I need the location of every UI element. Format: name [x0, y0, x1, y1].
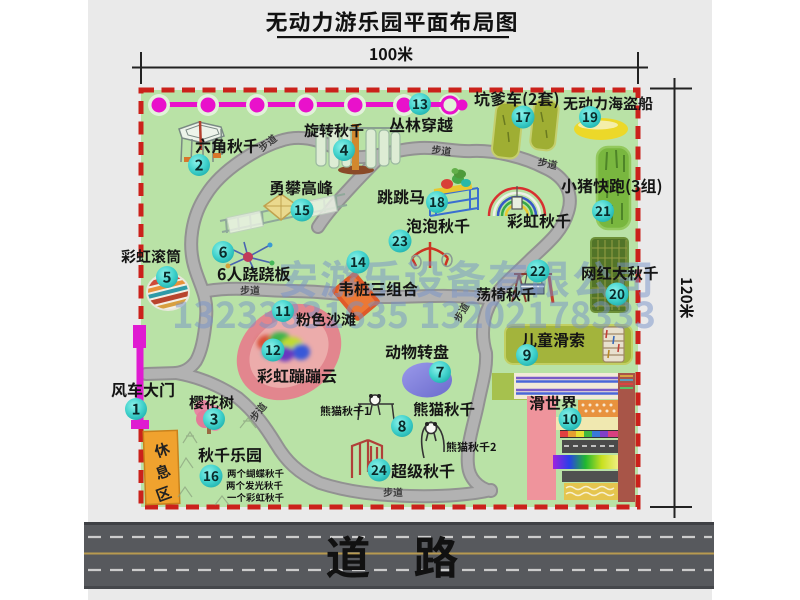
svg-text:14: 14: [350, 251, 366, 271]
svg-text:22: 22: [530, 260, 546, 280]
svg-text:超级秋千: 超级秋千: [391, 458, 455, 482]
svg-text:旋转秋千: 旋转秋千: [304, 120, 364, 141]
svg-text:13: 13: [412, 93, 428, 113]
svg-text:15: 15: [294, 199, 310, 219]
svg-text:步道: 步道: [383, 484, 403, 499]
svg-text:熊猫秋千1: 熊猫秋千1: [320, 403, 371, 419]
svg-text:彩虹秋千: 彩虹秋千: [507, 208, 571, 232]
svg-text:韦桩三组合: 韦桩三组合: [338, 276, 418, 300]
svg-text:小猪快跑(3组): 小猪快跑(3组): [561, 173, 663, 197]
svg-text:19: 19: [582, 106, 598, 126]
svg-text:12: 12: [265, 339, 281, 359]
svg-text:8: 8: [398, 416, 407, 437]
svg-text:1: 1: [132, 399, 141, 420]
svg-text:风车大门: 风车大门: [111, 377, 175, 401]
svg-text:6人跷跷板: 6人跷跷板: [217, 261, 290, 285]
svg-text:6: 6: [219, 242, 228, 263]
svg-text:六角秋千: 六角秋千: [195, 133, 259, 157]
svg-text:丛林穿越: 丛林穿越: [389, 112, 453, 136]
svg-text:3: 3: [210, 409, 219, 430]
svg-text:24: 24: [371, 459, 387, 479]
svg-text:泡泡秋千: 泡泡秋千: [406, 213, 470, 237]
svg-text:23: 23: [392, 230, 408, 250]
svg-text:16: 16: [203, 465, 219, 485]
svg-text:4: 4: [340, 140, 349, 161]
svg-text:9: 9: [523, 345, 532, 366]
svg-text:2: 2: [195, 155, 204, 176]
svg-text:道: 道: [325, 522, 370, 587]
svg-text:路: 路: [413, 522, 458, 587]
svg-text:100米: 100米: [369, 41, 413, 65]
svg-text:120米: 120米: [676, 277, 697, 319]
svg-text:彩虹蹦蹦云: 彩虹蹦蹦云: [257, 363, 337, 387]
svg-text:网红大秋千: 网红大秋千: [581, 262, 659, 284]
svg-text:荡椅秋千: 荡椅秋千: [476, 284, 536, 305]
svg-text:20: 20: [609, 283, 625, 303]
svg-text:熊猫秋千2: 熊猫秋千2: [446, 439, 497, 455]
svg-text:10: 10: [562, 408, 578, 428]
svg-text:7: 7: [436, 362, 445, 383]
svg-text:一个彩虹秋千: 一个彩虹秋千: [227, 490, 285, 504]
svg-text:熊猫秋千: 熊猫秋千: [413, 398, 475, 420]
svg-text:粉色沙滩: 粉色沙滩: [296, 309, 356, 330]
svg-text:5: 5: [163, 267, 172, 288]
svg-text:秋千乐园: 秋千乐园: [198, 442, 262, 466]
svg-text:彩虹滚筒: 彩虹滚筒: [121, 246, 181, 267]
svg-text:动物转盘: 动物转盘: [385, 339, 449, 363]
svg-text:18: 18: [429, 191, 445, 211]
svg-text:步道: 步道: [431, 141, 453, 158]
svg-text:勇攀高峰: 勇攀高峰: [269, 175, 333, 199]
svg-text:21: 21: [595, 200, 611, 220]
svg-text:17: 17: [515, 106, 531, 126]
svg-text:跳跳马: 跳跳马: [377, 184, 425, 208]
svg-text:无动力游乐园平面布局图: 无动力游乐园平面布局图: [265, 5, 518, 37]
svg-text:11: 11: [275, 300, 291, 320]
svg-text:无动力海盗船: 无动力海盗船: [563, 93, 653, 114]
